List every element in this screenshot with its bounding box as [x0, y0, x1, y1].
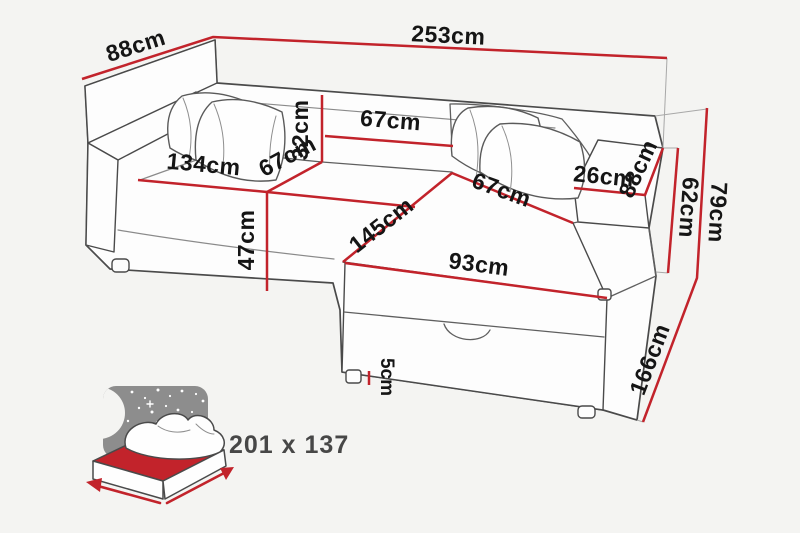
chaise-foot-left — [346, 370, 361, 383]
sofa-dimension-diagram: 88cm 253cm 32cm 67cm 67cm 134cm 47cm 67c… — [0, 0, 800, 533]
dim-label-backrest-width: 67cm — [359, 105, 422, 136]
dim-label-total-width: 253cm — [411, 20, 486, 49]
diagram-canvas: 88cm 253cm 32cm 67cm 67cm 134cm 47cm 67c… — [0, 0, 800, 533]
sleeping-area-icon: 201 x 137 — [73, 386, 349, 503]
chaise-foot-right — [578, 406, 595, 418]
sleeping-size-label: 201 x 137 — [229, 431, 349, 459]
left-armrest-front — [86, 143, 118, 252]
moon-icon — [73, 387, 125, 439]
sofa-foot-left — [112, 259, 129, 272]
dim-label-total-height: 79cm — [703, 181, 732, 243]
dim-label-seat-height: 47cm — [233, 210, 259, 271]
dim-label-leg-height: 5cm — [376, 358, 397, 396]
dim-label-armrest-height: 62cm — [674, 176, 704, 238]
